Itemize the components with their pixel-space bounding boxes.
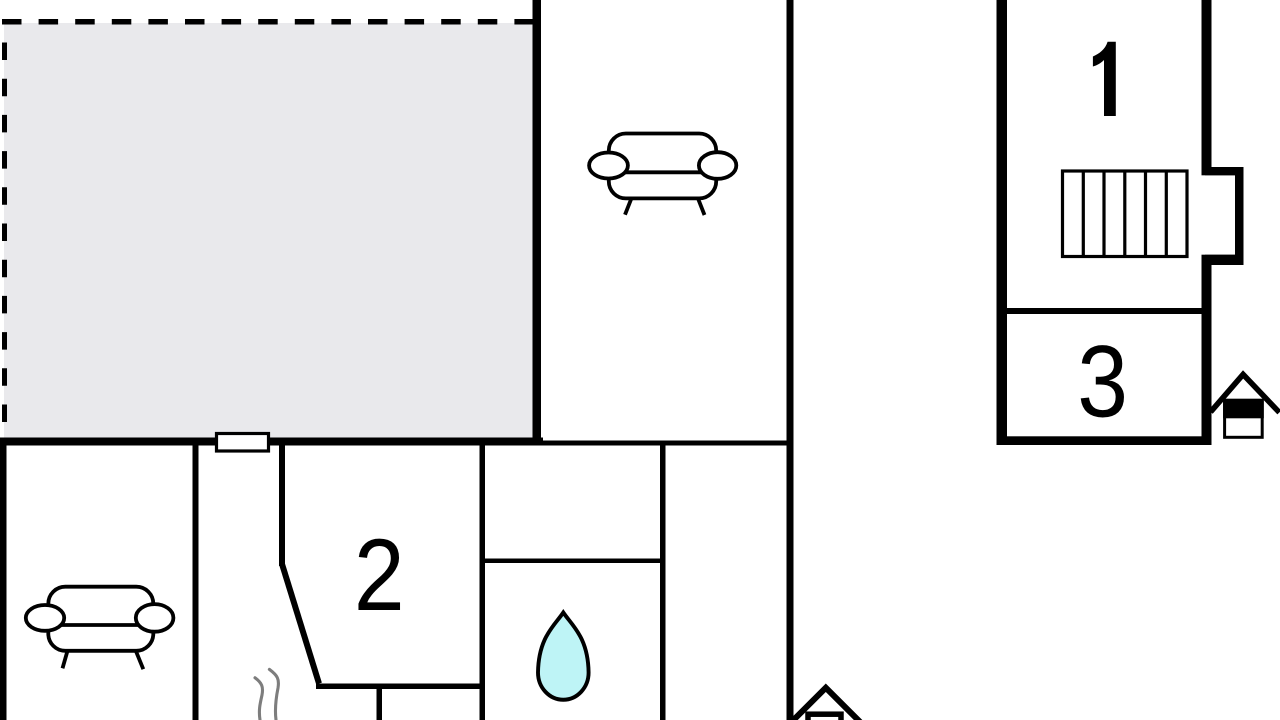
- svg-text:2: 2: [354, 517, 405, 632]
- svg-text:3: 3: [1077, 324, 1128, 439]
